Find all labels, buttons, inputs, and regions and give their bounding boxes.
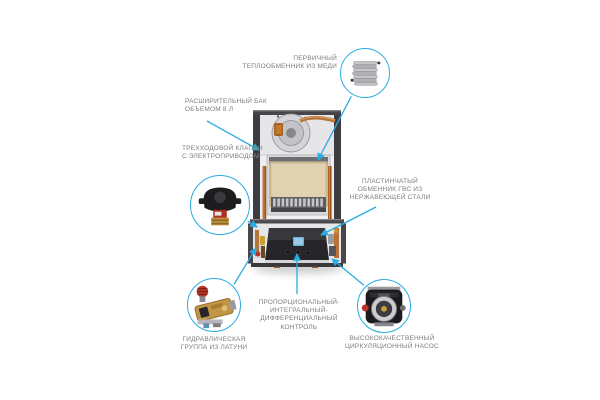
label-primary-heat-exchanger: ПЕРВИЧНЫЙ ТЕПЛООБМЕННИК ИЗ МЕДИ <box>237 55 337 71</box>
line-circulation-pump <box>332 259 366 287</box>
hydraulic-group-icon <box>188 279 240 331</box>
circulation-pump-icon <box>358 280 410 332</box>
heat-exchanger-icon <box>341 49 389 97</box>
line-hydraulic-group <box>233 248 256 286</box>
circulation-pump-thumbnail <box>357 279 411 333</box>
three-way-valve-thumbnail <box>190 175 250 235</box>
label-three-way-valve: ТРЕХХОДОВОЙ КЛАПАН С ЭЛЕКТРОПРИВОДОМ <box>182 145 272 161</box>
boiler-features-diagram: ПЕРВИЧНЫЙ ТЕПЛООБМЕННИК ИЗ МЕДИ РАСШИРИТ… <box>0 0 600 400</box>
label-circulation-pump: ВЫСОКОКАЧЕСТВЕННЫЙ ЦИРКУЛЯЦИОННЫЙ НАСОС <box>334 335 450 351</box>
line-three-way-valve <box>246 220 257 227</box>
label-expansion-tank: РАСШИРИТЕЛЬНЫЙ БАК ОБЪЕМОМ 8 Л <box>185 98 275 114</box>
line-primary-heat-exchanger <box>318 95 352 160</box>
label-plate-exchanger: ПЛАСТИНЧАТЫЙ ОБМЕННИК ГВС ИЗ НЕРЖАВЕЮЩЕЙ… <box>338 178 442 203</box>
label-pid-control: ПРОПОРЦИОНАЛЬНЫЙ- ИНТЕГРАЛЬНЫЙ- ДИФФЕРЕН… <box>247 299 351 332</box>
hydraulic-group-thumbnail <box>187 278 241 332</box>
primary-heat-exchanger-thumbnail <box>340 48 390 98</box>
line-plate-exchanger <box>321 207 376 235</box>
three-way-valve-icon <box>191 176 249 234</box>
label-hydraulic-group: ГИДРАВЛИЧЕСКАЯ ГРУППА ИЗ ЛАТУНИ <box>156 336 272 352</box>
